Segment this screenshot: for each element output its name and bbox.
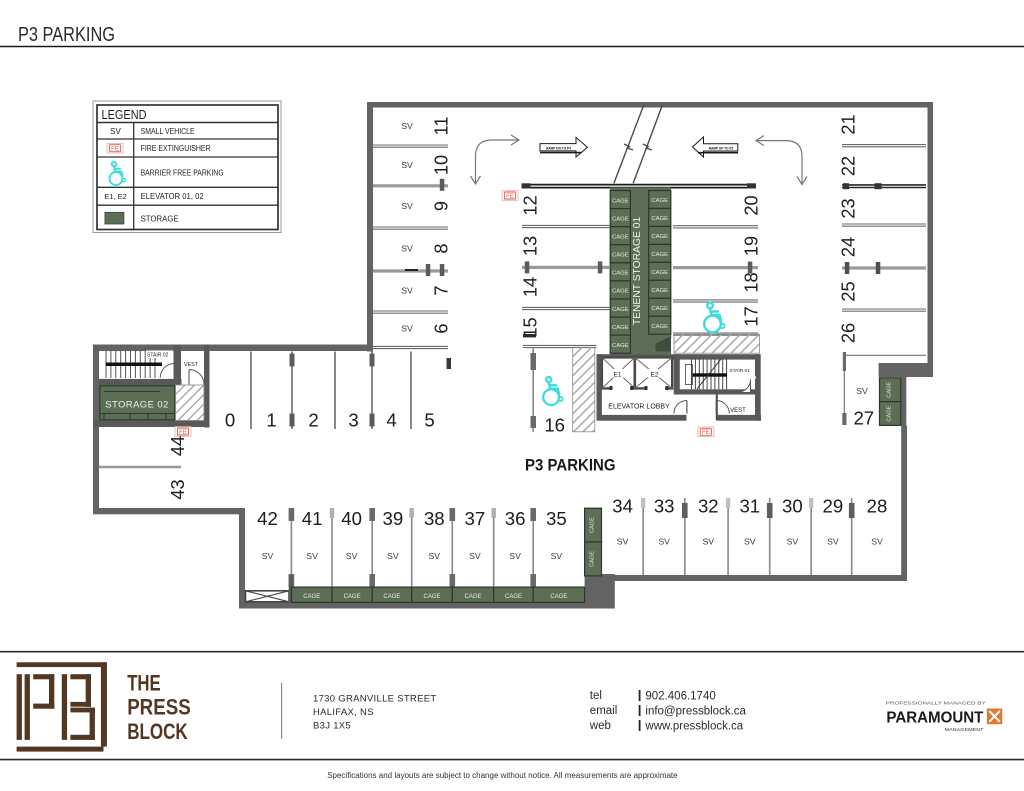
svg-text:30: 30 [782, 496, 803, 517]
svg-text:E2: E2 [651, 372, 659, 379]
svg-text:BARRIER FREE PARKING: BARRIER FREE PARKING [141, 169, 224, 178]
svg-text:0: 0 [225, 410, 235, 431]
svg-text:RAMP DN TO P4: RAMP DN TO P4 [546, 146, 571, 150]
svg-text:email: email [590, 705, 617, 717]
svg-text:CAGE: CAGE [590, 517, 596, 533]
svg-text:FE: FE [179, 430, 187, 436]
svg-text:34: 34 [612, 496, 633, 517]
svg-text:CAGE: CAGE [464, 594, 481, 600]
svg-text:39: 39 [383, 508, 404, 529]
svg-text:SV: SV [401, 286, 413, 296]
svg-text:CAGE: CAGE [612, 216, 629, 222]
svg-text:1730 GRANVILLE STREET: 1730 GRANVILLE STREET [313, 694, 437, 705]
svg-text:SV: SV [787, 537, 799, 547]
svg-text:RAMP UP TO P2: RAMP UP TO P2 [709, 146, 734, 150]
svg-text:SV: SV [387, 551, 399, 561]
svg-text:PRESS: PRESS [127, 695, 191, 720]
svg-text:43: 43 [168, 479, 188, 499]
svg-text:SV: SV [703, 537, 715, 547]
svg-text:SV: SV [871, 537, 883, 547]
svg-text:MANAGEMENT: MANAGEMENT [945, 727, 984, 733]
svg-text:3: 3 [348, 410, 358, 431]
svg-text:37: 37 [465, 508, 486, 529]
svg-text:14: 14 [520, 277, 540, 297]
svg-text:CAGE: CAGE [612, 289, 629, 295]
svg-text:10: 10 [431, 155, 451, 175]
svg-text:13: 13 [520, 236, 540, 256]
svg-text:ELEVATOR LOBBY: ELEVATOR LOBBY [608, 403, 670, 410]
svg-text:SV: SV [401, 201, 413, 211]
svg-text:ELEVATOR 01, 02: ELEVATOR 01, 02 [141, 192, 205, 201]
svg-text:www.pressblock.ca: www.pressblock.ca [644, 721, 743, 733]
svg-text:CAGE: CAGE [590, 551, 596, 567]
svg-text:SV: SV [262, 551, 274, 561]
svg-text:CAGE: CAGE [612, 325, 629, 331]
svg-text:19: 19 [742, 236, 762, 256]
svg-text:CAGE: CAGE [651, 234, 668, 240]
svg-text:SV: SV [429, 551, 441, 561]
svg-text:E1, E2: E1, E2 [104, 192, 127, 201]
svg-text:tel: tel [590, 690, 602, 702]
svg-text:STORAGE: STORAGE [141, 215, 179, 224]
svg-text:28: 28 [867, 496, 888, 517]
svg-text:29: 29 [823, 496, 844, 517]
svg-text:CAGE: CAGE [423, 594, 440, 600]
svg-text:6: 6 [431, 323, 451, 333]
svg-text:16: 16 [544, 415, 565, 436]
svg-text:STORAGE 02: STORAGE 02 [105, 400, 169, 411]
svg-text:CAGE: CAGE [651, 216, 668, 222]
svg-text:9: 9 [431, 201, 451, 211]
svg-text:SV: SV [551, 551, 563, 561]
svg-text:VEST: VEST [730, 408, 746, 414]
svg-text:CAGE: CAGE [887, 382, 893, 398]
svg-text:CAGE: CAGE [651, 306, 668, 312]
svg-text:42: 42 [257, 508, 278, 529]
svg-text:CAGE: CAGE [612, 235, 629, 241]
svg-text:CAGE: CAGE [612, 253, 629, 259]
svg-text:SV: SV [110, 127, 121, 136]
svg-text:PARAMOUNT: PARAMOUNT [886, 710, 984, 727]
svg-text:CAGE: CAGE [651, 198, 668, 204]
svg-text:27: 27 [853, 408, 874, 429]
svg-text:33: 33 [654, 496, 675, 517]
svg-text:CAGE: CAGE [887, 405, 893, 421]
svg-text:18: 18 [742, 272, 762, 292]
svg-text:SV: SV [401, 160, 413, 170]
svg-text:1: 1 [266, 410, 276, 431]
svg-text:SV: SV [856, 386, 868, 396]
svg-text:FE: FE [506, 194, 514, 200]
svg-text:LEGEND: LEGEND [102, 108, 147, 122]
svg-text:12: 12 [520, 195, 540, 215]
svg-text:2: 2 [308, 410, 318, 431]
svg-text:SV: SV [827, 537, 839, 547]
svg-text:CAGE: CAGE [612, 343, 629, 349]
svg-text:VEST: VEST [184, 362, 199, 368]
svg-text:SV: SV [469, 551, 481, 561]
svg-text:40: 40 [341, 508, 362, 529]
svg-text:FIRE EXTINGUISHER: FIRE EXTINGUISHER [141, 144, 211, 153]
svg-text:CAGE: CAGE [303, 594, 320, 600]
svg-text:17: 17 [742, 306, 762, 326]
svg-text:36: 36 [505, 508, 526, 529]
svg-text:44: 44 [168, 436, 188, 456]
svg-text:4: 4 [386, 410, 396, 431]
svg-text:FE: FE [111, 147, 119, 153]
svg-text:25: 25 [838, 281, 858, 301]
svg-text:23: 23 [838, 198, 858, 218]
svg-text:SMALL VEHICLE: SMALL VEHICLE [141, 127, 195, 136]
svg-text:38: 38 [424, 508, 445, 529]
svg-text:24: 24 [838, 237, 858, 257]
svg-text:21: 21 [838, 114, 858, 134]
svg-text:FE: FE [702, 430, 710, 436]
svg-text:8: 8 [431, 243, 451, 253]
svg-text:22: 22 [838, 156, 858, 176]
svg-text:P3 PARKING: P3 PARKING [525, 457, 616, 475]
svg-text:SV: SV [617, 537, 629, 547]
svg-text:CAGE: CAGE [383, 594, 400, 600]
svg-text:CAGE: CAGE [550, 594, 567, 600]
svg-text:SV: SV [401, 244, 413, 254]
svg-text:CAGE: CAGE [612, 271, 629, 277]
svg-text:7: 7 [431, 285, 451, 295]
svg-text:31: 31 [739, 496, 760, 517]
svg-text:TENENT STORAGE 01: TENENT STORAGE 01 [632, 217, 643, 326]
svg-text:SV: SV [401, 324, 413, 334]
svg-text:HALIFAX, NS: HALIFAX, NS [313, 707, 374, 718]
svg-text:STAIR 01: STAIR 01 [729, 368, 750, 374]
svg-text:P3 PARKING: P3 PARKING [18, 24, 115, 46]
svg-text:41: 41 [302, 508, 323, 529]
svg-text:32: 32 [698, 496, 719, 517]
svg-text:CAGE: CAGE [651, 324, 668, 330]
svg-text:CAGE: CAGE [651, 252, 668, 258]
svg-text:B3J 1X5: B3J 1X5 [313, 721, 351, 732]
svg-text:26: 26 [838, 323, 858, 343]
svg-text:902.406.1740: 902.406.1740 [645, 691, 715, 703]
svg-text:20: 20 [742, 195, 762, 215]
svg-text:35: 35 [546, 508, 567, 529]
svg-text:info@pressblock.ca: info@pressblock.ca [645, 706, 746, 718]
svg-text:web: web [589, 720, 611, 732]
svg-text:BLOCK: BLOCK [127, 719, 188, 744]
svg-text:SV: SV [509, 551, 521, 561]
svg-text:SV: SV [744, 537, 756, 547]
svg-text:SV: SV [658, 537, 670, 547]
svg-text:THE: THE [127, 671, 161, 696]
svg-text:CAGE: CAGE [344, 594, 361, 600]
svg-text:CAGE: CAGE [651, 270, 668, 276]
svg-text:Specifications and layouts are: Specifications and layouts are subject t… [327, 771, 678, 780]
svg-text:CAGE: CAGE [612, 307, 629, 313]
svg-text:SV: SV [401, 121, 413, 131]
svg-text:E1: E1 [614, 372, 622, 379]
svg-text:CAGE: CAGE [612, 198, 629, 204]
svg-text:11: 11 [431, 117, 451, 136]
svg-text:PROFESSIONALLY MANAGED BY: PROFESSIONALLY MANAGED BY [886, 701, 987, 707]
svg-text:5: 5 [424, 410, 434, 431]
svg-text:SV: SV [306, 551, 318, 561]
svg-text:STAIR 02: STAIR 02 [147, 353, 169, 359]
svg-text:SV: SV [346, 551, 358, 561]
svg-text:CAGE: CAGE [505, 594, 522, 600]
svg-text:CAGE: CAGE [651, 288, 668, 294]
